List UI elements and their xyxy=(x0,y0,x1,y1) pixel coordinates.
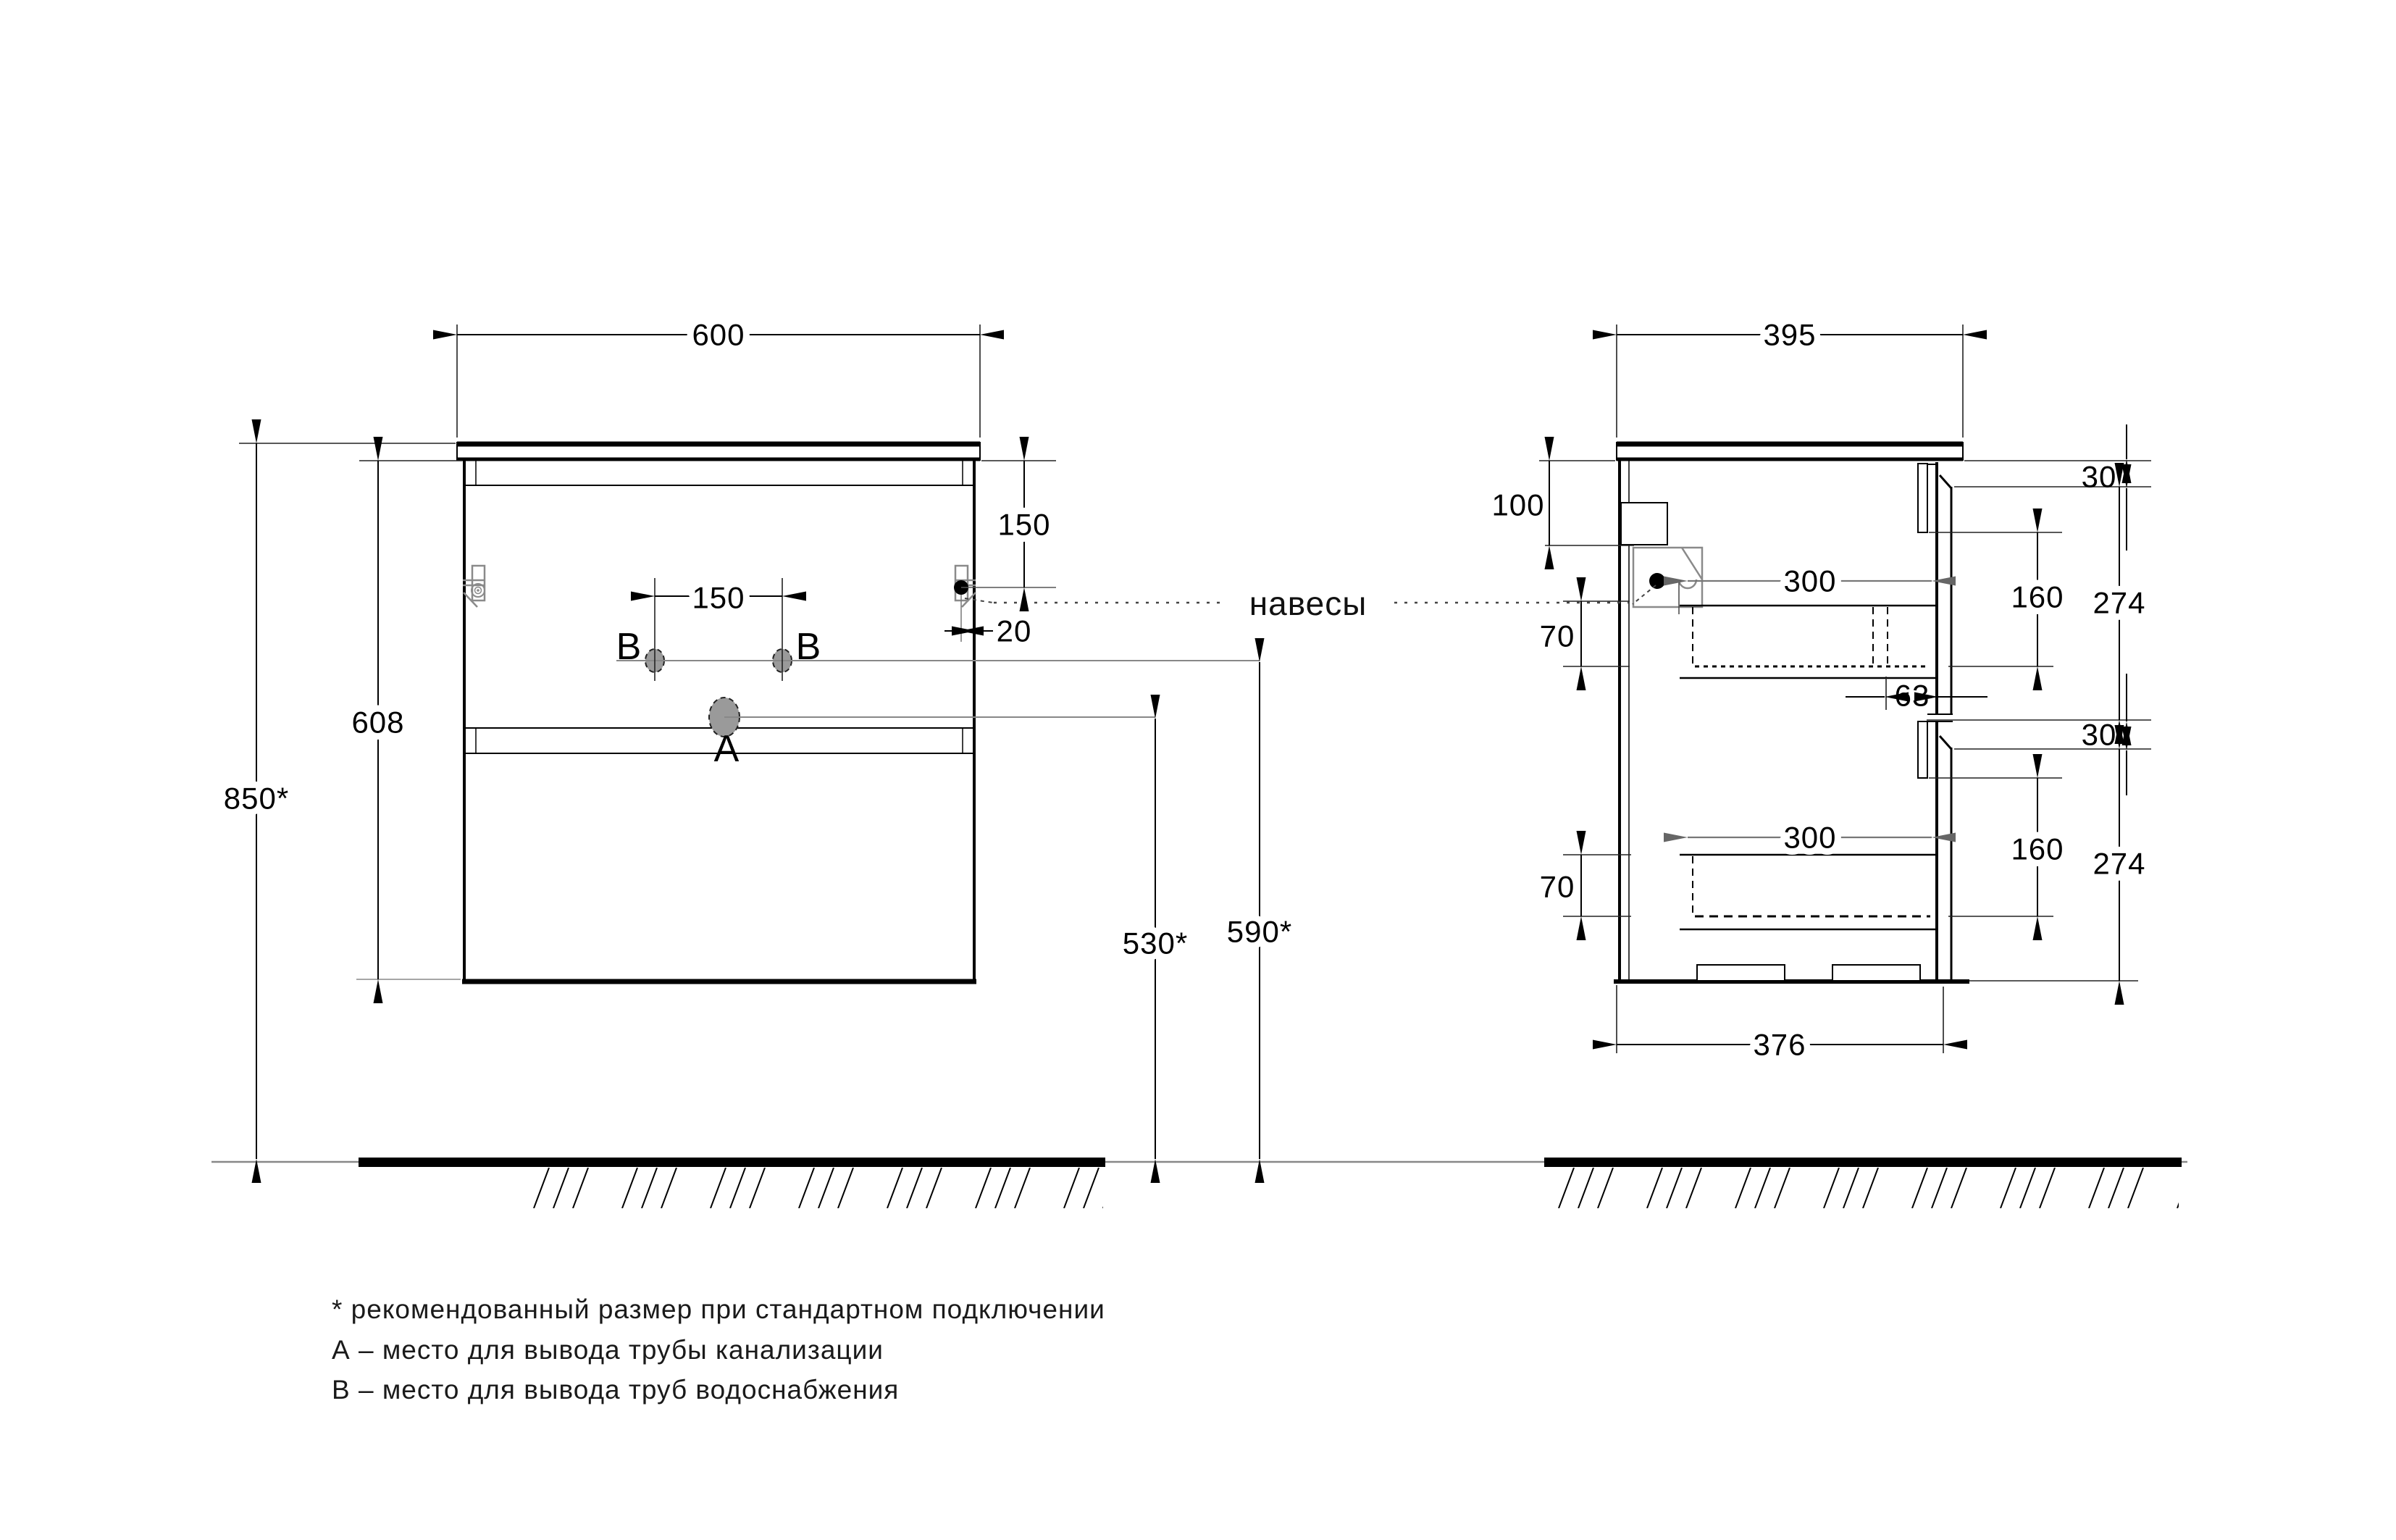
dim-300-bottom-label: 300 xyxy=(1783,821,1836,855)
hole-a-label: A xyxy=(714,728,740,770)
dim-608-label: 608 xyxy=(351,706,404,740)
dim-274-bottom-label: 274 xyxy=(2093,847,2145,881)
dim-300-top-label: 300 xyxy=(1783,564,1836,598)
dim-274-top-label: 274 xyxy=(2093,586,2145,620)
screw-icon xyxy=(477,589,479,592)
drawer2-box xyxy=(1680,855,1935,929)
drawer1-box xyxy=(1680,606,1935,678)
dim-63-label: 63 xyxy=(1895,679,1930,713)
vanity-dimension-drawing: навесы xyxy=(0,0,2396,1540)
dim-20-label: 20 xyxy=(997,614,1032,648)
notes-block: * рекомендованный размер при стандартном… xyxy=(332,1294,1105,1405)
dim-30-top-label: 30 xyxy=(2082,460,2117,494)
hangers-label: навесы xyxy=(1249,585,1367,622)
drawer-fronts-side-profile xyxy=(1918,462,1953,981)
floor-slab-right xyxy=(1544,1158,2182,1167)
note-recommended-size: * рекомендованный размер при стандартном… xyxy=(332,1294,1105,1324)
note-hole-b: В – место для вывода труб водоснабжения xyxy=(332,1375,899,1405)
dim-850-label: 850* xyxy=(224,782,289,816)
dim-70-top-label: 70 xyxy=(1540,619,1575,653)
dim-150-holes-label: 150 xyxy=(692,581,745,615)
technical-drawing-page: навесы xyxy=(0,0,2396,1540)
floor-hatching-left xyxy=(532,1168,1103,1208)
glide-block-right xyxy=(1832,965,1920,981)
note-hole-a: А – место для вывода трубы канализации xyxy=(332,1335,884,1365)
dim-395-label: 395 xyxy=(1763,318,1816,352)
dim-590-label: 590* xyxy=(1227,915,1292,949)
dim-530-label: 530* xyxy=(1123,926,1188,961)
hole-b-right-label: B xyxy=(796,626,821,668)
floor xyxy=(211,1158,2187,1208)
dim-160-bottom-label: 160 xyxy=(2011,832,2064,866)
glide-block-left xyxy=(1697,965,1785,981)
dim-376-label: 376 xyxy=(1753,1028,1806,1062)
dim-160-top-label: 160 xyxy=(2011,580,2064,614)
dim-600-label: 600 xyxy=(692,318,745,352)
dim-100-label: 100 xyxy=(1491,488,1544,522)
wall-bracket-left xyxy=(463,566,485,607)
floor-hatching-right xyxy=(1557,1168,2179,1208)
dim-30-mid-label: 30 xyxy=(2082,718,2117,752)
mounting-rail xyxy=(1621,503,1667,545)
hole-b-left-label: B xyxy=(616,626,642,668)
dim-70-bottom-label: 70 xyxy=(1540,870,1575,904)
floor-slab-left xyxy=(359,1158,1105,1167)
hanger-leader-side xyxy=(1633,585,1656,604)
front-view xyxy=(457,443,1260,982)
extension-lines xyxy=(239,325,2151,1053)
hanger-fixing-point-side-icon xyxy=(1649,573,1665,589)
dim-150-vertical-label: 150 xyxy=(997,508,1050,542)
